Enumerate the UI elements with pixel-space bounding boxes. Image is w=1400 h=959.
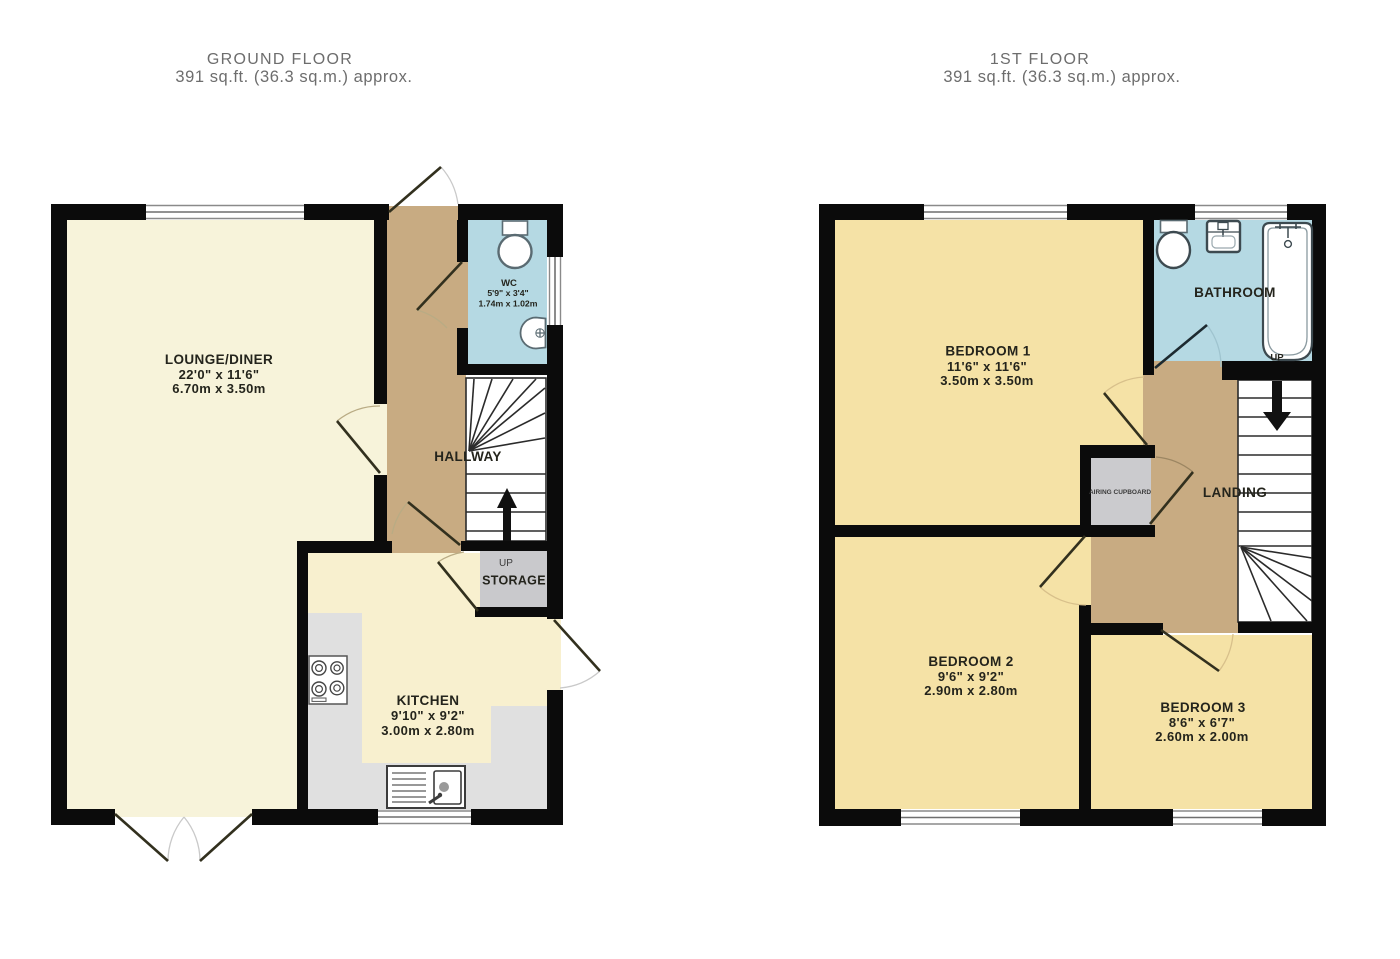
svg-text:UP: UP xyxy=(1270,353,1284,364)
svg-text:22'0" x 11'6": 22'0" x 11'6" xyxy=(179,367,260,382)
svg-text:6.70m x 3.50m: 6.70m x 3.50m xyxy=(172,381,265,396)
svg-text:2.60m x 2.00m: 2.60m x 2.00m xyxy=(1155,729,1248,744)
svg-text:KITCHEN: KITCHEN xyxy=(397,693,460,708)
svg-text:11'6" x 11'6": 11'6" x 11'6" xyxy=(947,359,1027,374)
svg-text:LANDING: LANDING xyxy=(1203,485,1267,500)
svg-text:8'6" x 6'7": 8'6" x 6'7" xyxy=(1169,715,1235,730)
svg-text:BEDROOM 1: BEDROOM 1 xyxy=(945,344,1030,359)
svg-text:GROUND FLOOR: GROUND FLOOR xyxy=(207,51,353,68)
svg-text:9'10" x 9'2": 9'10" x 9'2" xyxy=(391,708,465,723)
svg-text:BATHROOM: BATHROOM xyxy=(1194,285,1276,300)
svg-text:2.90m x 2.80m: 2.90m x 2.80m xyxy=(924,683,1017,698)
svg-text:LOUNGE/DINER: LOUNGE/DINER xyxy=(165,352,273,367)
svg-text:1.74m x 1.02m: 1.74m x 1.02m xyxy=(479,299,538,309)
svg-text:STORAGE: STORAGE xyxy=(482,574,546,588)
svg-text:AIRING CUPBOARD: AIRING CUPBOARD xyxy=(1089,489,1151,496)
svg-text:3.50m x 3.50m: 3.50m x 3.50m xyxy=(940,373,1033,388)
svg-text:5'9" x 3'4": 5'9" x 3'4" xyxy=(487,288,528,298)
svg-text:UP: UP xyxy=(499,558,513,569)
svg-text:391 sq.ft. (36.3 sq.m.) approx: 391 sq.ft. (36.3 sq.m.) approx. xyxy=(175,68,412,86)
svg-text:391 sq.ft. (36.3 sq.m.) approx: 391 sq.ft. (36.3 sq.m.) approx. xyxy=(943,68,1180,86)
svg-text:1ST FLOOR: 1ST FLOOR xyxy=(990,51,1090,68)
svg-text:BEDROOM 2: BEDROOM 2 xyxy=(928,654,1013,669)
svg-text:9'6" x 9'2": 9'6" x 9'2" xyxy=(938,669,1004,684)
svg-text:BEDROOM 3: BEDROOM 3 xyxy=(1160,700,1245,715)
svg-text:HALLWAY: HALLWAY xyxy=(434,449,502,464)
svg-text:3.00m x 2.80m: 3.00m x 2.80m xyxy=(381,723,474,738)
